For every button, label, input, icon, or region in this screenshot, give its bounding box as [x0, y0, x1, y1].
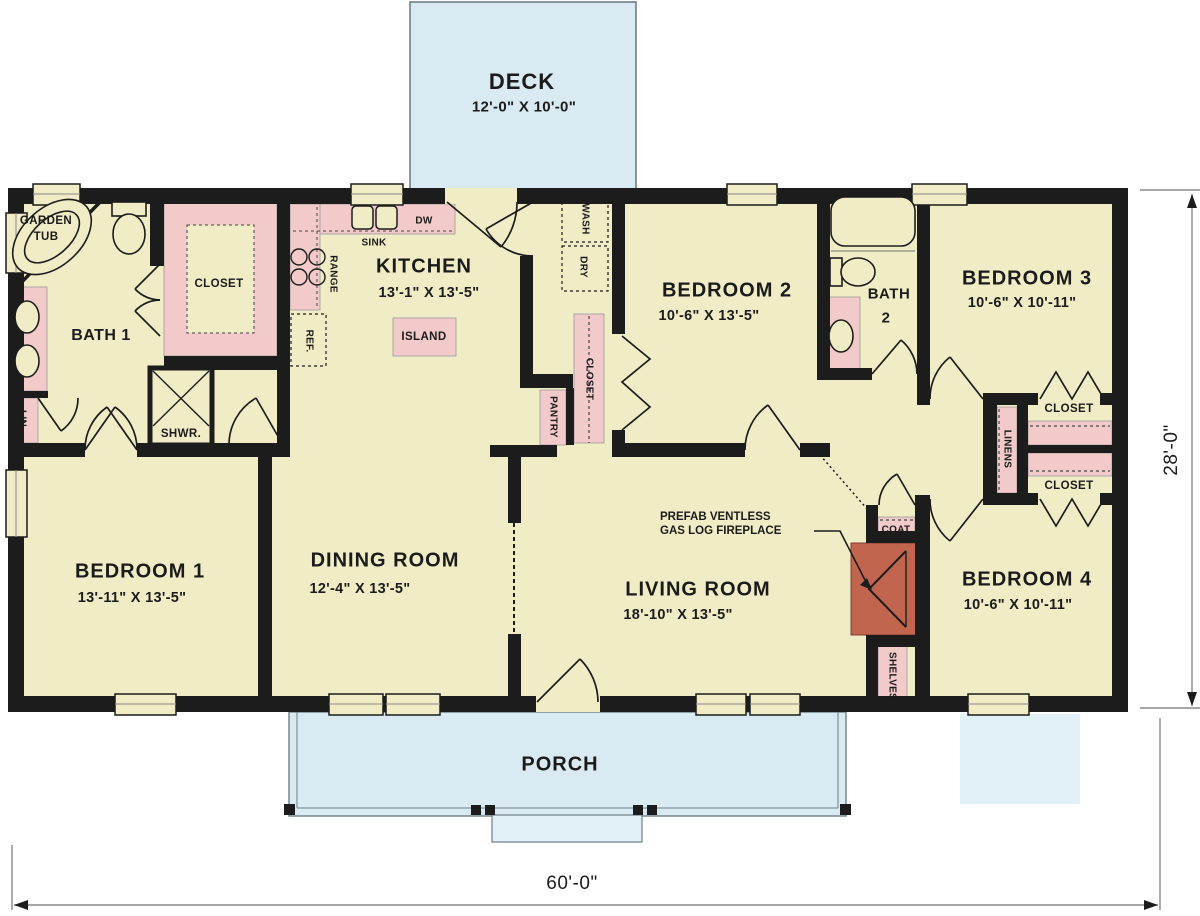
bedroom2-label: BEDROOM 2 — [662, 280, 792, 303]
dishwasher-label: DW — [415, 216, 432, 227]
vanity-sink-1 — [15, 301, 39, 333]
bath2-label: BATH — [868, 286, 911, 303]
deck-dims: 12'-0" X 10'-0" — [472, 99, 576, 116]
bath1-label: BATH 1 — [71, 327, 131, 345]
bed2-closet-label: CLOSET — [584, 358, 595, 400]
bath2-number: 2 — [882, 310, 891, 327]
fireplace-note-line1: PREFAB VENTLESS — [660, 511, 771, 523]
fireplace — [851, 543, 917, 635]
bed4-closet-shelf — [1028, 453, 1112, 476]
kitchen-counter-left — [290, 204, 320, 310]
range-label: RANGE — [328, 255, 339, 293]
porch-steps — [492, 815, 642, 842]
vanity-sink — [829, 320, 853, 352]
bedroom4-label: BEDROOM 4 — [962, 569, 1092, 592]
dining-dims: 12'-4" X 13'-5" — [310, 581, 411, 597]
bedroom3-dims: 10'-6" X 10'-11" — [968, 295, 1076, 311]
garden-tub-label-2: TUB — [34, 231, 59, 243]
kitchen-label: KITCHEN — [376, 256, 472, 279]
deck-area — [410, 2, 636, 190]
shower-label: SHWR. — [161, 428, 201, 440]
dryer-label: DRY — [578, 256, 589, 278]
bed3-closet-shelf — [1028, 421, 1112, 445]
washer-label: WASH — [580, 203, 591, 234]
bedroom1-dims: 13'-11" X 13'-5" — [78, 590, 186, 606]
island-label: ISLAND — [401, 331, 446, 343]
coat-closet-label: COAT — [882, 525, 911, 536]
living-label: LIVING ROOM — [625, 579, 770, 602]
bath1-closet-label: CLOSET — [194, 278, 243, 290]
plan-linework — [0, 0, 1200, 916]
bedroom3-label: BEDROOM 3 — [962, 268, 1092, 291]
bedroom1-label: BEDROOM 1 — [75, 561, 205, 584]
toilet-bowl — [841, 258, 875, 286]
overall-width-dimension: 60'-0" — [546, 873, 597, 895]
deck-label: DECK — [489, 69, 555, 95]
fireplace-note-line2: GAS LOG FIREPLACE — [660, 525, 781, 537]
refrigerator-label: REF. — [304, 330, 315, 353]
sink-label: SINK — [361, 238, 386, 249]
vanity-sink-2 — [15, 345, 39, 377]
sink-basin-2 — [376, 206, 397, 229]
pantry-label: PANTRY — [548, 396, 559, 438]
linens-label: LINENS — [1002, 430, 1013, 468]
linen-cabinet-label: LIN. — [17, 410, 28, 430]
dining-label: DINING ROOM — [311, 550, 460, 573]
living-dims: 18'-10" X 13'-5" — [623, 607, 732, 623]
overall-depth-dimension: 28'-0" — [1161, 424, 1183, 475]
toilet-bowl — [113, 214, 145, 254]
garden-tub-label-1: GARDEN — [20, 215, 72, 227]
bath2-tub — [831, 197, 915, 246]
shelves-label: SHELVES — [887, 652, 898, 700]
bed3-closet-label: CLOSET — [1044, 403, 1093, 415]
porch-label: PORCH — [521, 754, 598, 777]
floor-plan: DECK 12'-0" X 10'-0" PORCH BATH 1 GARDEN… — [0, 0, 1200, 916]
fireplace-note: PREFAB VENTLESS GAS LOG FIREPLACE — [660, 511, 781, 538]
bedroom2-dims: 10'-6" X 13'-5" — [659, 308, 760, 324]
porch-area — [284, 712, 1080, 842]
bed4-closet-label: CLOSET — [1044, 480, 1093, 492]
sink-basin-1 — [352, 206, 373, 229]
kitchen-dims: 13'-1" X 13'-5" — [379, 285, 480, 301]
bedroom4-dims: 10'-6" X 10'-11" — [964, 597, 1072, 613]
